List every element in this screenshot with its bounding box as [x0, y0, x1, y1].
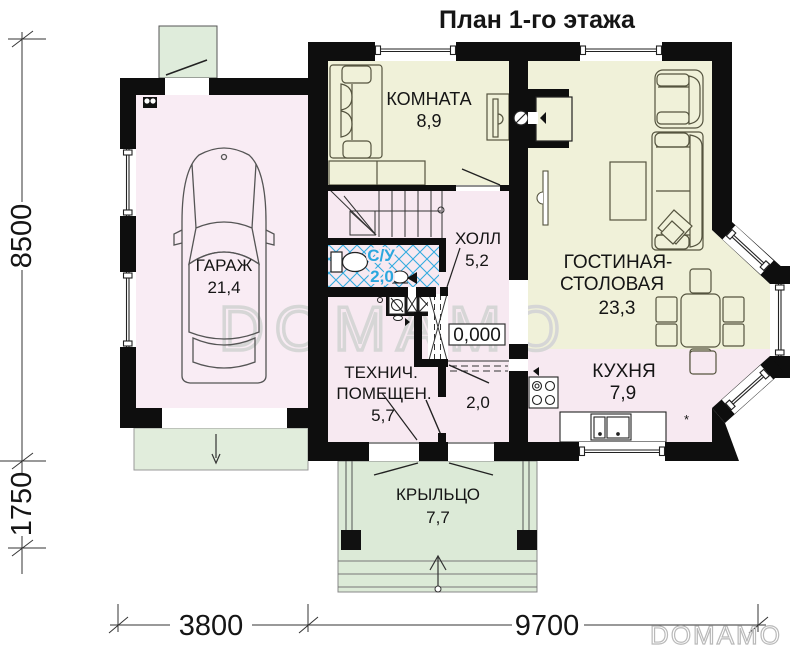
svg-text:С/У: С/У [367, 246, 395, 265]
svg-text:7,9: 7,9 [610, 383, 636, 404]
svg-text:ПОМЕЩЕН.: ПОМЕЩЕН. [336, 384, 431, 403]
svg-text:ХОЛЛ: ХОЛЛ [455, 229, 501, 248]
svg-text:ТЕХНИЧ.: ТЕХНИЧ. [344, 363, 418, 382]
svg-text:23,3: 23,3 [599, 298, 636, 319]
svg-text:2,0: 2,0 [370, 267, 394, 286]
svg-text:*: * [684, 412, 689, 427]
svg-text:2,0: 2,0 [466, 393, 490, 412]
svg-text:КОМНАТА: КОМНАТА [386, 89, 471, 109]
svg-text:5,7: 5,7 [371, 406, 395, 425]
svg-text:КУХНЯ: КУХНЯ [592, 361, 655, 382]
svg-text:8500: 8500 [6, 204, 38, 269]
svg-text:3800: 3800 [179, 610, 244, 642]
svg-text:КРЫЛЬЦО: КРЫЛЬЦО [396, 485, 480, 504]
svg-text:План 1-го этажа: План 1-го этажа [439, 6, 636, 34]
svg-text:7,7: 7,7 [426, 508, 450, 527]
svg-text:9700: 9700 [515, 610, 580, 642]
svg-text:DOMAMO: DOMAMO [650, 620, 782, 649]
svg-text:ГАРАЖ: ГАРАЖ [196, 256, 253, 275]
svg-text:8,9: 8,9 [416, 111, 441, 131]
svg-text:1750: 1750 [6, 472, 38, 537]
svg-text:21,4: 21,4 [207, 278, 240, 297]
svg-text:ГОСТИНАЯ-: ГОСТИНАЯ- [564, 252, 673, 273]
svg-text:0,000: 0,000 [453, 325, 501, 346]
svg-text:СТОЛОВАЯ: СТОЛОВАЯ [560, 274, 664, 295]
svg-text:5,2: 5,2 [465, 251, 489, 270]
